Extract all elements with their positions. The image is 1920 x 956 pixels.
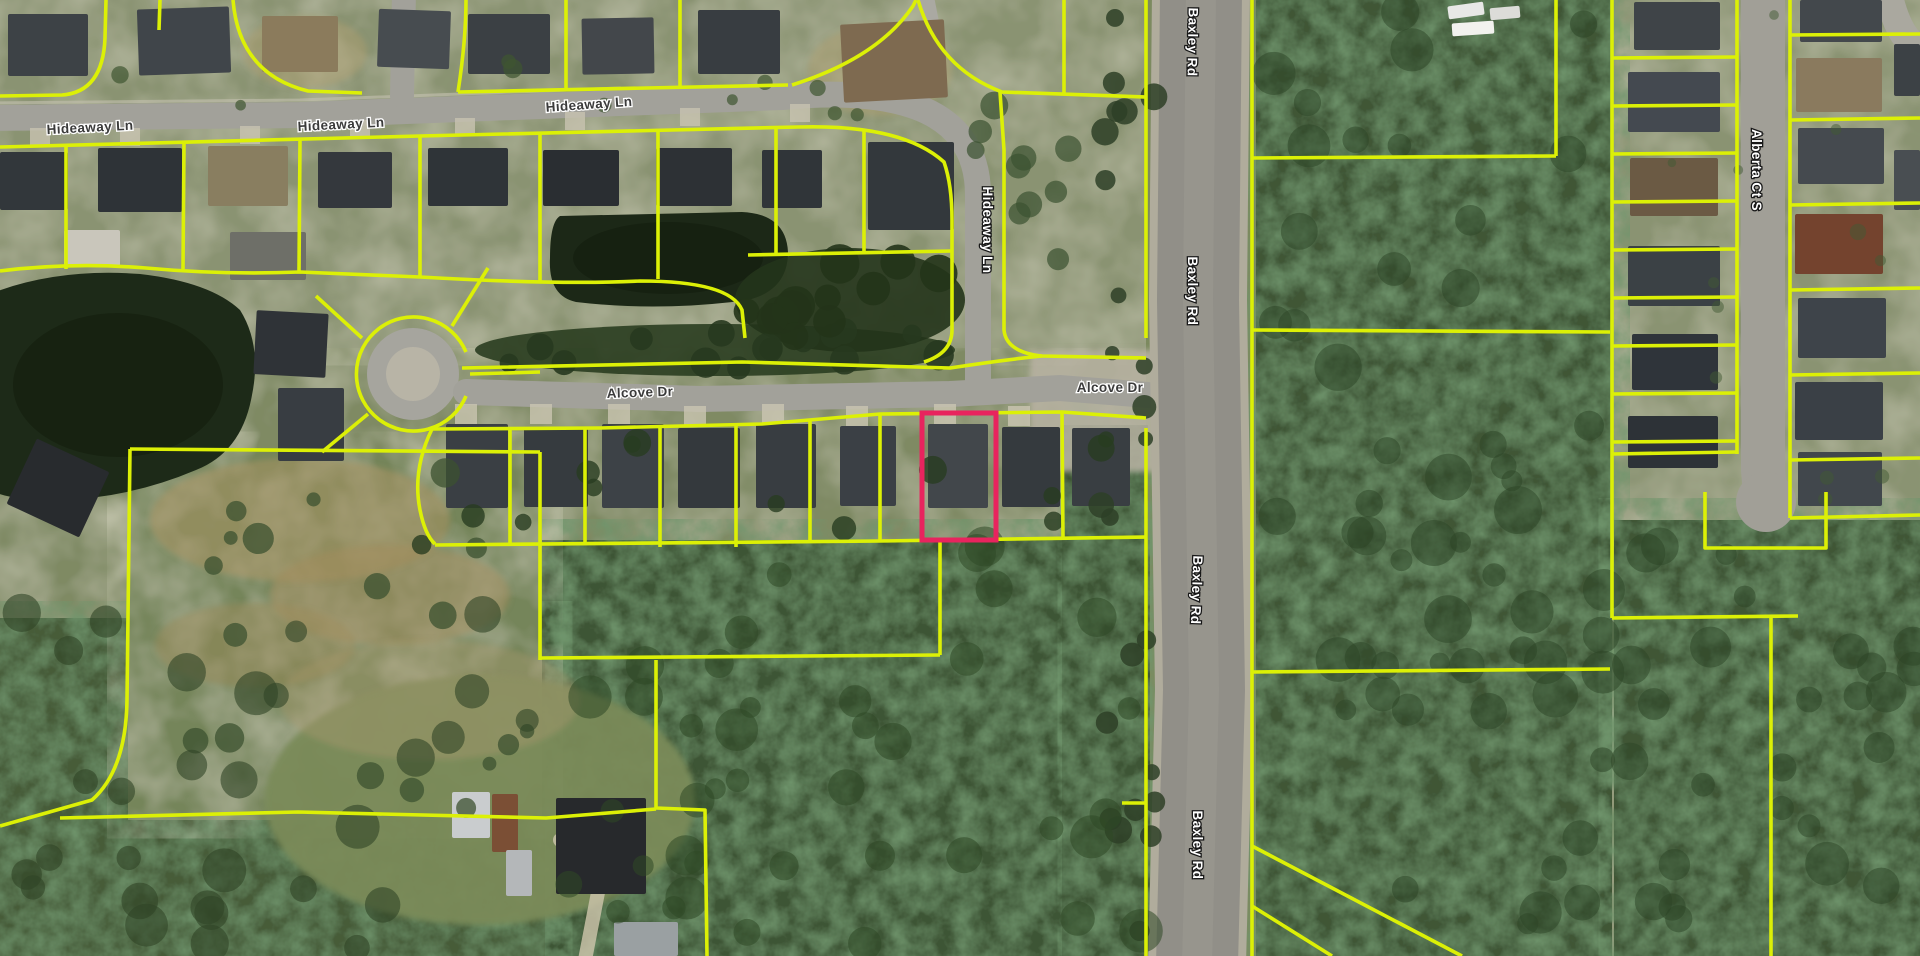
tree-canopy <box>757 303 788 334</box>
tree-canopy <box>1480 431 1507 458</box>
tree-canopy <box>455 674 489 708</box>
tree-canopy <box>215 723 244 752</box>
tree-canopy <box>516 709 539 732</box>
house-footprint <box>8 14 88 76</box>
tree-canopy <box>1006 154 1031 179</box>
house-footprint <box>656 148 732 206</box>
tree-canopy <box>1095 170 1115 190</box>
tree-canopy <box>976 570 1013 607</box>
tree-canopy <box>527 333 554 360</box>
house-footprint <box>762 150 822 208</box>
house-footprint <box>1628 72 1720 132</box>
tree-canopy <box>1612 646 1651 685</box>
tree-canopy <box>950 642 984 676</box>
tree-canopy <box>813 305 846 338</box>
house-footprint <box>253 310 328 378</box>
tree-canopy <box>1045 181 1067 203</box>
tree-canopy <box>1482 563 1505 586</box>
tree-canopy <box>431 458 460 487</box>
tree-canopy <box>1118 697 1141 720</box>
tree-canopy <box>1875 469 1889 483</box>
tree-canopy <box>880 244 915 279</box>
tree-canopy <box>167 653 205 691</box>
cul-de-sac-center <box>386 347 440 401</box>
tree-canopy <box>969 120 992 143</box>
tree-canopy <box>1519 891 1561 933</box>
tree-canopy <box>1345 642 1377 674</box>
tree-canopy <box>357 762 384 789</box>
tree-canopy <box>1411 520 1457 566</box>
house-footprint <box>262 16 338 72</box>
tree-canopy <box>290 875 317 902</box>
tree-canopy <box>1341 517 1373 549</box>
house-footprint <box>137 6 231 75</box>
parcel-boundary-line <box>1612 345 1737 346</box>
house-footprint <box>377 9 451 69</box>
parcel-boundary-line <box>1790 288 1920 290</box>
tree-canopy <box>54 636 83 665</box>
tree-canopy <box>1668 158 1677 167</box>
tree-canopy <box>1342 127 1369 154</box>
tree-canopy <box>757 75 772 90</box>
tree-canopy <box>740 697 761 718</box>
tree-canopy <box>705 649 734 678</box>
tree-canopy <box>1356 490 1383 517</box>
tree-canopy <box>727 94 738 105</box>
tree-canopy <box>466 537 487 558</box>
tree-canopy <box>1390 28 1433 71</box>
tree-canopy <box>626 646 664 684</box>
tree-canopy <box>832 516 856 540</box>
tree-canopy <box>1690 627 1731 668</box>
parcel-boundary-line <box>1790 203 1920 205</box>
tree-canopy <box>111 66 128 83</box>
tree-canopy <box>1390 549 1412 571</box>
tree-canopy <box>285 621 307 643</box>
tree-canopy <box>1583 617 1620 654</box>
road-label-alberta-ct-s: Alberta Ct S <box>1749 129 1764 211</box>
tree-canopy <box>1510 590 1553 633</box>
tree-canopy <box>555 871 582 898</box>
tree-canopy <box>1564 884 1600 920</box>
house-footprint <box>1894 44 1920 96</box>
tree-canopy <box>125 904 168 947</box>
tree-canopy <box>967 141 985 159</box>
parcel-boundary-line <box>1612 105 1737 106</box>
tree-canopy <box>432 721 465 754</box>
tree-canopy <box>1864 732 1895 763</box>
tree-canopy <box>1626 533 1665 572</box>
parcel-boundary-line <box>1612 57 1737 58</box>
tree-canopy <box>1314 344 1361 391</box>
tree-canopy <box>828 106 842 120</box>
tree-canopy <box>1769 10 1779 20</box>
tree-canopy <box>1850 224 1866 240</box>
tree-canopy <box>1442 269 1480 307</box>
tree-canopy <box>108 778 135 805</box>
tree-canopy <box>500 354 519 373</box>
tree-canopy <box>1533 672 1578 717</box>
tree-canopy <box>243 523 274 554</box>
driveway <box>790 104 810 122</box>
parcel-boundary-line <box>1252 156 1556 158</box>
tree-canopy <box>1103 72 1125 94</box>
tree-canopy <box>235 100 246 111</box>
tree-canopy <box>1796 687 1822 713</box>
tree-canopy <box>202 848 246 892</box>
parcel-boundary-line <box>1612 393 1737 394</box>
tree-canopy <box>705 778 726 799</box>
tree-canopy <box>606 900 630 924</box>
satellite-map[interactable]: Hideaway LnHideaway LnHideaway LnHideawa… <box>0 0 1920 956</box>
tree-canopy <box>1635 883 1672 920</box>
tree-canopy <box>461 504 484 527</box>
tree-canopy <box>1140 825 1162 847</box>
parcel-boundary-line <box>1612 616 1798 618</box>
tree-canopy <box>1088 492 1114 518</box>
parcel-boundary-line <box>299 140 300 272</box>
tree-canopy <box>630 327 653 350</box>
tree-canopy <box>1562 820 1598 856</box>
tree-canopy <box>1106 9 1124 27</box>
parcel-boundary-line <box>1612 201 1737 202</box>
tree-canopy <box>3 594 41 632</box>
tree-canopy <box>1278 309 1310 341</box>
tree-canopy <box>624 436 641 453</box>
tree-canopy <box>1044 512 1063 531</box>
tree-canopy <box>1638 688 1670 720</box>
road-label-hideaway-ln-vertical: Hideaway Ln <box>980 187 995 274</box>
tree-canopy <box>1119 909 1163 953</box>
house-footprint <box>1894 150 1920 210</box>
tree-canopy <box>726 769 749 792</box>
tree-canopy <box>1805 842 1849 886</box>
house-footprint <box>678 428 740 508</box>
tree-canopy <box>568 675 611 718</box>
tree-canopy <box>483 757 497 771</box>
tree-canopy <box>665 877 708 920</box>
tree-canopy <box>1106 101 1127 122</box>
tree-canopy <box>1043 487 1060 504</box>
driveway <box>565 112 585 130</box>
tree-canopy <box>21 875 45 899</box>
tree-canopy <box>1863 868 1899 904</box>
tree-canopy <box>1365 677 1400 712</box>
parcel-boundary-line <box>1612 452 1737 454</box>
tree-canopy <box>224 531 238 545</box>
house-footprint <box>1798 298 1886 358</box>
tree-canopy <box>1425 454 1472 501</box>
driveway <box>530 404 552 424</box>
tree-canopy <box>1734 586 1756 608</box>
tree-canopy <box>397 739 435 777</box>
tree-canopy <box>1798 814 1821 837</box>
tree-canopy <box>1509 636 1537 664</box>
tree-canopy <box>307 492 321 506</box>
tree-canopy <box>1288 124 1331 167</box>
parcel-boundary-line <box>159 0 160 30</box>
parcel-boundary-line <box>1790 118 1920 120</box>
tree-canopy <box>946 837 982 873</box>
driveway <box>684 406 706 426</box>
road-alberta-ct-s <box>1763 0 1766 505</box>
tree-canopy <box>828 769 864 805</box>
road-label-alcove-dr-2: Alcove Dr <box>1077 380 1144 395</box>
tree-canopy <box>1659 849 1690 880</box>
tree-canopy <box>768 495 785 512</box>
tree-canopy <box>865 841 895 871</box>
tree-canopy <box>1335 700 1356 721</box>
tree-canopy <box>1831 124 1842 135</box>
tree-canopy <box>1583 569 1625 611</box>
house-footprint <box>840 426 896 506</box>
house-footprint <box>1798 128 1884 184</box>
tree-canopy <box>680 714 703 737</box>
tree-canopy <box>1424 595 1472 643</box>
tree-canopy <box>1259 498 1296 535</box>
parcel-boundary-line <box>1790 458 1920 460</box>
house-footprint <box>756 424 816 508</box>
driveway <box>608 404 630 424</box>
driveway <box>680 108 700 126</box>
tree-canopy <box>820 244 860 284</box>
tree-canopy <box>183 728 209 754</box>
house-footprint <box>428 148 508 206</box>
tree-canopy <box>1392 876 1419 903</box>
tree-canopy <box>810 80 826 96</box>
tree-canopy <box>576 460 599 483</box>
tree-canopy <box>1611 743 1648 780</box>
tree-canopy <box>633 855 654 876</box>
tree-canopy <box>830 346 859 375</box>
house-footprint <box>1632 334 1718 390</box>
tree-canopy <box>223 623 247 647</box>
parcel-boundary-line <box>1252 330 1610 332</box>
tree-canopy <box>177 750 208 781</box>
tree-canopy <box>1039 816 1063 840</box>
parcel-boundary-line <box>1062 412 1063 538</box>
house-footprint <box>1795 214 1883 274</box>
tree-canopy <box>1377 252 1411 286</box>
tree-canopy <box>1374 437 1401 464</box>
tree-canopy <box>234 671 278 715</box>
road-label-alcove-dr-1: Alcove Dr <box>606 384 673 401</box>
house-footprint <box>1796 58 1882 112</box>
tree-canopy <box>204 556 223 575</box>
road-label-baxley-rd-2: Baxley Rd <box>1185 257 1200 326</box>
tree-canopy <box>1712 301 1724 313</box>
road-label-baxley-rd-1: Baxley Rd <box>1185 7 1201 76</box>
tree-canopy <box>1470 693 1507 730</box>
tree-canopy <box>1570 11 1597 38</box>
tree-canopy <box>429 602 457 630</box>
house-footprint <box>208 146 288 206</box>
house-footprint <box>318 152 392 208</box>
tree-canopy <box>1820 471 1834 485</box>
tree-canopy <box>902 325 921 344</box>
house-footprint <box>582 17 655 74</box>
tree-canopy <box>1120 643 1144 667</box>
tree-canopy <box>1875 255 1886 266</box>
tree-canopy <box>980 92 1008 120</box>
tree-canopy <box>1691 773 1715 797</box>
parcel-boundary-line <box>470 372 540 374</box>
tree-canopy <box>767 562 792 587</box>
tree-canopy <box>874 723 911 760</box>
tree-canopy <box>1710 371 1722 383</box>
tree-canopy <box>515 514 532 531</box>
tree-canopy <box>852 712 879 739</box>
tree-canopy <box>226 501 246 521</box>
tree-canopy <box>851 108 864 121</box>
tree-canopy <box>1091 118 1118 145</box>
tree-canopy <box>769 851 798 880</box>
house-footprint <box>1630 158 1718 216</box>
tree-canopy <box>1077 598 1116 637</box>
tree-canopy <box>498 734 519 755</box>
tree-canopy <box>194 896 228 930</box>
road-label-baxley-rd-4: Baxley Rd <box>1190 811 1205 880</box>
tree-canopy <box>1060 901 1094 935</box>
house-footprint <box>98 148 182 212</box>
road-label-baxley-rd-3: Baxley Rd <box>1188 555 1205 624</box>
tree-canopy <box>856 272 890 306</box>
road-alcove-dr <box>466 388 1160 399</box>
parcel-boundary-line <box>1612 249 1737 250</box>
house-footprint <box>868 142 954 230</box>
tree-canopy <box>1770 796 1794 820</box>
tree-canopy <box>1281 213 1318 250</box>
parcel-boundary-line <box>1790 373 1920 375</box>
tree-canopy <box>503 59 522 78</box>
tree-canopy <box>1009 202 1031 224</box>
house-footprint <box>506 850 532 896</box>
parcel-boundary-line <box>1612 153 1737 154</box>
tree-canopy <box>1090 798 1122 830</box>
tree-canopy <box>90 606 122 638</box>
tree-canopy <box>1541 855 1567 881</box>
tree-canopy <box>1047 248 1069 270</box>
tree-canopy <box>1574 411 1604 441</box>
tree-canopy <box>1455 205 1486 236</box>
tree-canopy <box>1252 52 1295 95</box>
tree-canopy <box>1708 277 1719 288</box>
house-footprint <box>1634 2 1720 50</box>
tree-canopy <box>1111 288 1127 304</box>
tree-canopy <box>1388 134 1412 158</box>
parcel-boundary-line <box>183 143 184 269</box>
tree-canopy <box>117 846 141 870</box>
parcel-boundary-line <box>1612 297 1737 298</box>
house-footprint <box>0 152 68 210</box>
house-footprint <box>698 10 780 74</box>
tree-canopy <box>464 596 501 633</box>
parcel-boundary-line <box>1790 34 1920 35</box>
parcel-boundary-line <box>1612 441 1737 442</box>
tree-canopy <box>1136 358 1153 375</box>
tree-canopy <box>1294 89 1321 116</box>
tree-canopy <box>1088 435 1115 462</box>
driveway <box>1008 406 1030 426</box>
tree-canopy <box>36 844 63 871</box>
road-end-bulb <box>1736 472 1796 532</box>
house-footprint <box>492 794 518 852</box>
house-footprint <box>614 922 678 956</box>
tree-canopy <box>1494 486 1542 534</box>
tree-canopy <box>759 338 782 361</box>
tree-canopy <box>220 761 257 798</box>
house-footprint <box>543 150 619 206</box>
tree-canopy <box>1833 633 1869 669</box>
tree-canopy <box>1132 395 1156 419</box>
tree-canopy <box>552 350 577 375</box>
tree-canopy <box>727 356 750 379</box>
tree-canopy <box>400 778 424 802</box>
house-footprint <box>1795 382 1883 440</box>
tree-canopy <box>725 615 758 648</box>
house-footprint <box>64 230 120 266</box>
tree-canopy <box>365 887 400 922</box>
map-canvas: Hideaway LnHideaway LnHideaway LnHideawa… <box>0 0 1920 956</box>
tree-canopy <box>734 919 761 946</box>
tree-canopy <box>364 573 390 599</box>
tree-canopy <box>1449 648 1484 683</box>
tree-canopy <box>708 320 735 347</box>
tree-canopy <box>1055 136 1081 162</box>
tree-canopy <box>73 769 98 794</box>
tree-canopy <box>1096 711 1118 733</box>
